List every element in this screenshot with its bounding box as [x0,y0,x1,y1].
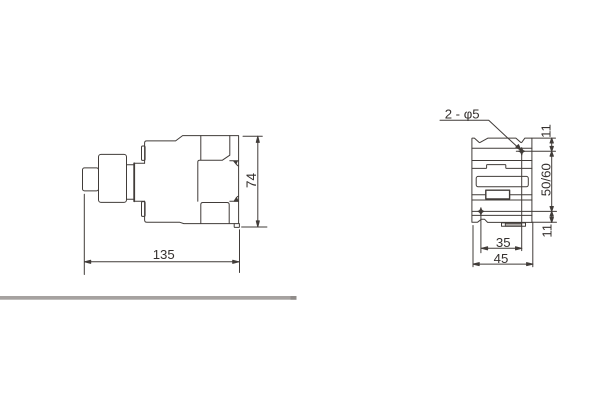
svg-text:50/60: 50/60 [539,163,554,196]
svg-text:11: 11 [539,124,554,138]
svg-text:74: 74 [244,173,259,189]
svg-text:35: 35 [496,235,511,250]
svg-text:2 - φ5: 2 - φ5 [445,107,480,122]
svg-text:135: 135 [153,247,175,262]
svg-text:45: 45 [494,251,509,266]
svg-text:11: 11 [539,224,554,238]
